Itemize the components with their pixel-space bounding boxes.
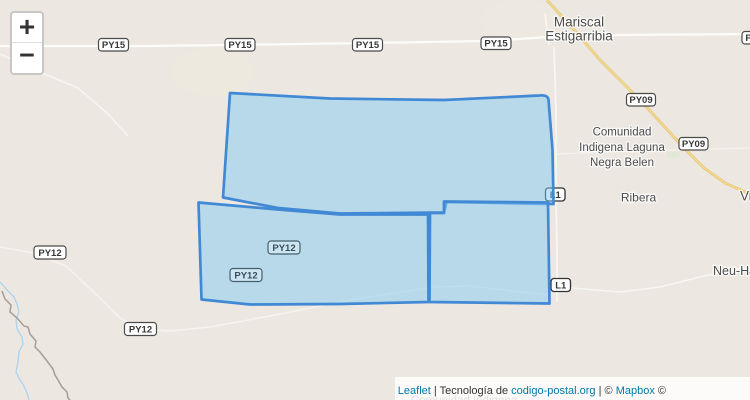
svg-text:Neu-Halbstadt: Neu-Halbstadt xyxy=(713,264,750,278)
svg-text:PY12: PY12 xyxy=(234,270,257,281)
svg-text:Indigena Laguna: Indigena Laguna xyxy=(579,142,665,154)
svg-text:PY09: PY09 xyxy=(682,139,705,150)
svg-text:L1: L1 xyxy=(555,280,567,291)
svg-text:PY15: PY15 xyxy=(484,39,508,50)
svg-text:PY15: PY15 xyxy=(228,40,252,51)
svg-text:PY12: PY12 xyxy=(129,324,152,335)
svg-text:PY15: PY15 xyxy=(102,40,126,51)
svg-text:Mariscal: Mariscal xyxy=(554,15,604,30)
svg-text:Estigarribia: Estigarribia xyxy=(545,29,613,44)
svg-text:PY09: PY09 xyxy=(629,95,652,106)
svg-text:Comunidad: Comunidad xyxy=(593,127,652,139)
svg-text:PY12: PY12 xyxy=(38,248,61,259)
svg-text:PY15: PY15 xyxy=(745,33,750,44)
svg-text:PY12: PY12 xyxy=(272,243,295,254)
svg-text:Negra Belen: Negra Belen xyxy=(590,157,654,169)
svg-text:PY15: PY15 xyxy=(356,40,380,51)
svg-text:Villa: Villa xyxy=(740,189,750,204)
svg-text:Ribera: Ribera xyxy=(621,191,657,205)
